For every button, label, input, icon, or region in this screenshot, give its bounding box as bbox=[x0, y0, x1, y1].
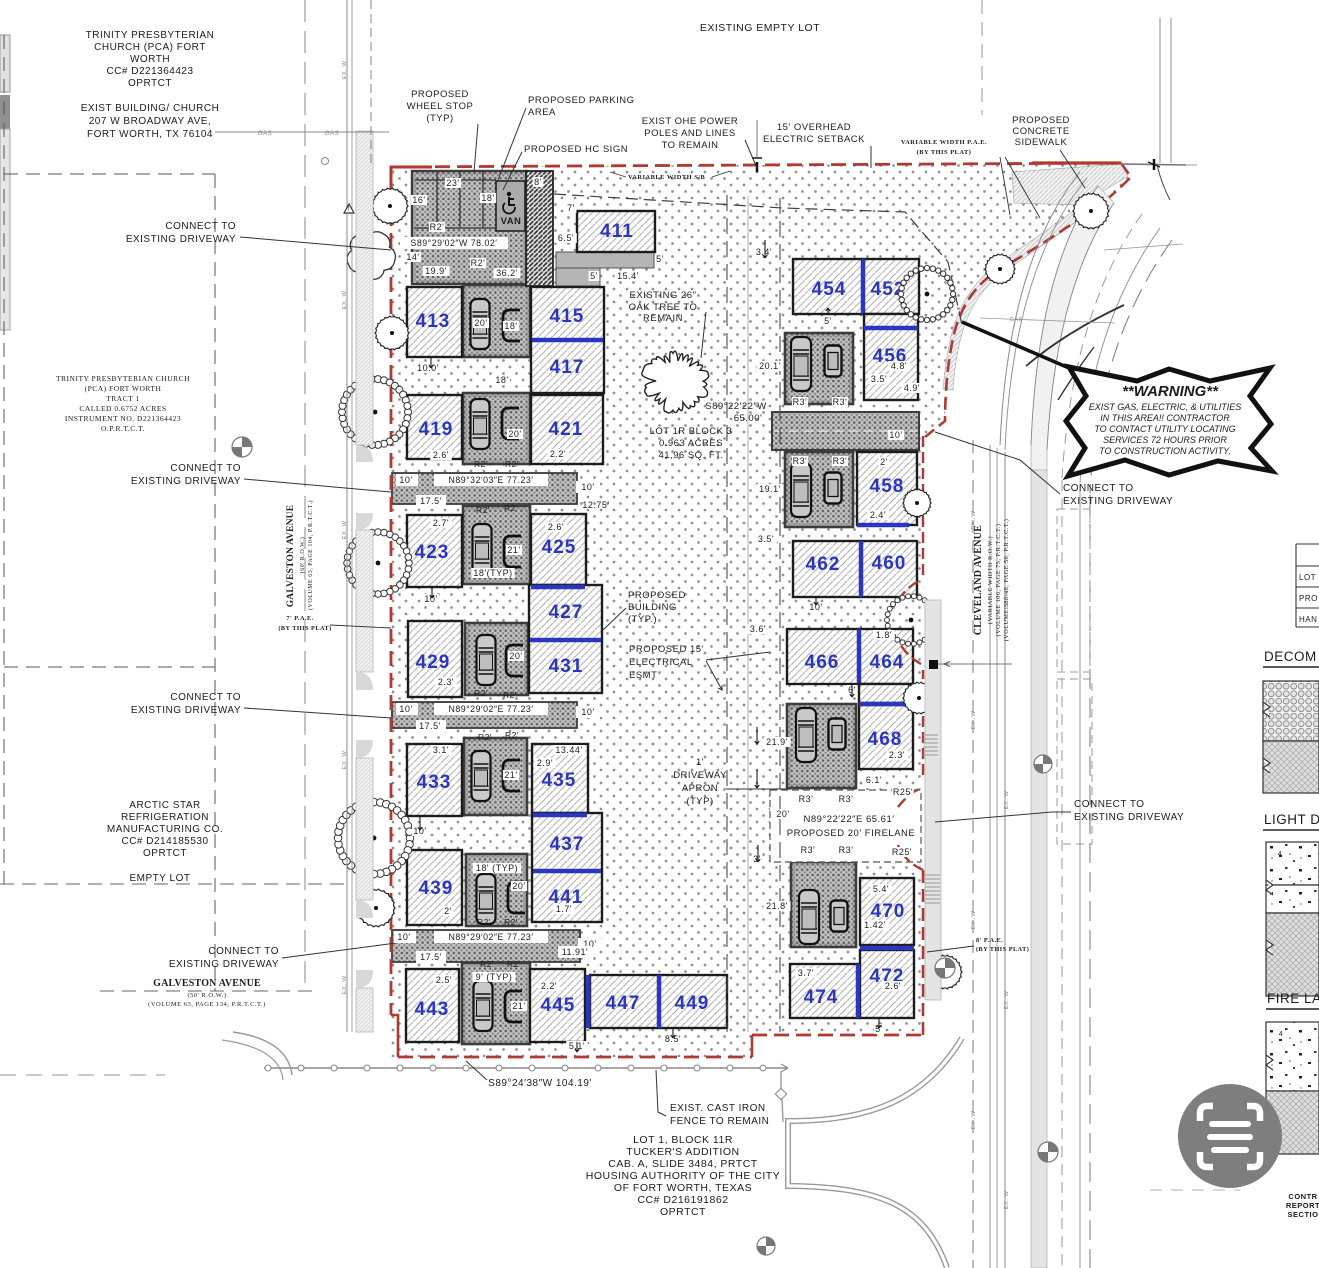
svg-text:R3': R3' bbox=[801, 845, 816, 855]
svg-text:EXISTING DRIVEWAY: EXISTING DRIVEWAY bbox=[126, 234, 236, 245]
svg-text:N89°29′02″E 77.23′: N89°29′02″E 77.23′ bbox=[449, 704, 534, 714]
svg-text:CC# D221364423: CC# D221364423 bbox=[106, 66, 193, 77]
svg-text:2.3': 2.3' bbox=[889, 750, 905, 760]
svg-text:9' (TYP): 9' (TYP) bbox=[476, 972, 513, 982]
svg-text:5.4': 5.4' bbox=[873, 884, 889, 894]
svg-text:R2': R2' bbox=[505, 459, 519, 469]
svg-text:464: 464 bbox=[870, 652, 905, 673]
svg-text:437: 437 bbox=[550, 834, 585, 855]
svg-text:447: 447 bbox=[606, 993, 641, 1014]
svg-text:10': 10' bbox=[889, 430, 902, 440]
svg-text:ELECTRICAL: ELECTRICAL bbox=[629, 657, 693, 668]
svg-text:462: 462 bbox=[806, 554, 841, 575]
svg-text:CLEVELAND AVENUE: CLEVELAND AVENUE bbox=[973, 525, 984, 636]
svg-text:CONCRETE: CONCRETE bbox=[1012, 126, 1069, 137]
svg-text:LOT: LOT bbox=[1299, 573, 1316, 582]
svg-text:5': 5' bbox=[590, 271, 598, 281]
svg-text:TO CONTACT UTILITY LOCATING: TO CONTACT UTILITY LOCATING bbox=[1094, 424, 1235, 434]
svg-text:20': 20' bbox=[512, 881, 525, 891]
svg-text:10': 10' bbox=[397, 932, 410, 942]
svg-text:2.9': 2.9' bbox=[537, 758, 553, 768]
svg-text:429: 429 bbox=[416, 652, 451, 673]
svg-text:1.8': 1.8' bbox=[876, 630, 892, 640]
svg-text:3.5': 3.5' bbox=[871, 374, 887, 384]
svg-text:6.1': 6.1' bbox=[866, 775, 882, 785]
svg-text:BUILDING: BUILDING bbox=[628, 602, 677, 613]
svg-text:21.8': 21.8' bbox=[766, 901, 788, 911]
svg-text:ARCTIC STAR: ARCTIC STAR bbox=[129, 800, 200, 811]
svg-text:EX. W: EX. W bbox=[342, 976, 348, 995]
svg-text:FIRE LA: FIRE LA bbox=[1267, 991, 1319, 1006]
svg-text:5': 5' bbox=[824, 316, 832, 326]
svg-text:470: 470 bbox=[871, 901, 906, 922]
svg-text:1': 1' bbox=[696, 757, 704, 768]
svg-text:TO REMAIN: TO REMAIN bbox=[661, 140, 718, 151]
svg-text:EX. W: EX. W bbox=[971, 1111, 977, 1130]
svg-text:419: 419 bbox=[419, 419, 454, 440]
svg-text:2.3': 2.3' bbox=[438, 677, 454, 687]
svg-text:4: 4 bbox=[1279, 1031, 1283, 1038]
svg-text:WORTH: WORTH bbox=[130, 54, 170, 65]
svg-text:R2': R2' bbox=[474, 688, 488, 698]
svg-text:EX. W: EX. W bbox=[342, 751, 348, 770]
svg-text:423: 423 bbox=[415, 542, 450, 563]
svg-text:458: 458 bbox=[870, 476, 905, 497]
svg-text:OPRTCT: OPRTCT bbox=[128, 78, 172, 89]
svg-text:DECOM: DECOM bbox=[1264, 649, 1317, 664]
svg-text:EX. W: EX. W bbox=[342, 61, 348, 80]
svg-text:7' P.A.E.: 7' P.A.E. bbox=[286, 615, 313, 622]
svg-text:(TYP): (TYP) bbox=[686, 796, 713, 807]
svg-text:PROPOSED 20' FIRELANE: PROPOSED 20' FIRELANE bbox=[787, 828, 915, 839]
svg-text:VARIABLE WIDTH S/B: VARIABLE WIDTH S/B bbox=[628, 174, 706, 181]
svg-text:2.2': 2.2' bbox=[550, 449, 566, 459]
svg-text:4.8': 4.8' bbox=[891, 361, 907, 371]
svg-text:(TYP.): (TYP.) bbox=[628, 614, 657, 625]
svg-text:CONNECT TO: CONNECT TO bbox=[170, 463, 241, 474]
svg-text:REFRIGERATION: REFRIGERATION bbox=[121, 812, 209, 823]
svg-text:HOUSING AUTHORITY OF THE CITY: HOUSING AUTHORITY OF THE CITY bbox=[586, 1170, 780, 1182]
svg-text:36.2': 36.2' bbox=[496, 268, 518, 278]
svg-text:WHEEL STOP: WHEEL STOP bbox=[407, 101, 474, 112]
svg-text:EXISTING DRIVEWAY: EXISTING DRIVEWAY bbox=[169, 959, 279, 970]
svg-text:421: 421 bbox=[549, 419, 584, 440]
svg-text:3.4': 3.4' bbox=[756, 247, 772, 257]
svg-text:DRIVEWAY: DRIVEWAY bbox=[673, 770, 727, 781]
svg-text:MANUFACTURING CO.: MANUFACTURING CO. bbox=[107, 824, 223, 835]
svg-text:R3': R3' bbox=[839, 845, 854, 855]
svg-text:INSTRUMENT NO. D221364423: INSTRUMENT NO. D221364423 bbox=[65, 414, 181, 423]
svg-text:20': 20' bbox=[776, 809, 789, 819]
svg-text:2.6': 2.6' bbox=[885, 981, 901, 991]
svg-text:GAS: GAS bbox=[1009, 317, 1022, 323]
svg-text:(VOLUME 106, PAGE 75, P.R.T.C.: (VOLUME 106, PAGE 75, P.R.T.C.T.) bbox=[995, 524, 1002, 637]
svg-text:EXIST OHE POWER: EXIST OHE POWER bbox=[642, 116, 739, 127]
svg-text:EXISTING DRIVEWAY: EXISTING DRIVEWAY bbox=[131, 476, 241, 487]
svg-text:(50' R.O.W.): (50' R.O.W.) bbox=[187, 992, 226, 999]
svg-text:18': 18' bbox=[504, 321, 517, 331]
svg-text:AREA: AREA bbox=[528, 107, 556, 118]
svg-text:PROPOSED: PROPOSED bbox=[411, 89, 469, 100]
svg-text:LIGHT D: LIGHT D bbox=[1264, 812, 1319, 827]
svg-text:21': 21' bbox=[504, 770, 517, 780]
svg-text:CONNECT TO: CONNECT TO bbox=[1063, 483, 1134, 494]
svg-text:SERVICES 72 HOURS PRIOR: SERVICES 72 HOURS PRIOR bbox=[1103, 435, 1227, 445]
svg-text:20': 20' bbox=[509, 651, 522, 661]
svg-text:13.44': 13.44' bbox=[555, 745, 582, 755]
svg-text:EX. W: EX. W bbox=[1004, 1191, 1010, 1210]
svg-text:15.4': 15.4' bbox=[617, 271, 639, 281]
svg-text:413: 413 bbox=[416, 311, 451, 332]
svg-text:(VOLUME 388-48, PAGE 50, P.R.T: (VOLUME 388-48, PAGE 50, P.R.T.C.T.) bbox=[1003, 519, 1010, 642]
svg-text:REPORT: REPORT bbox=[1286, 1201, 1319, 1210]
svg-text:LOT 1R BLOCK 3: LOT 1R BLOCK 3 bbox=[650, 426, 733, 437]
svg-text:18' (TYP): 18' (TYP) bbox=[476, 863, 518, 873]
svg-text:3.1': 3.1' bbox=[433, 745, 449, 755]
svg-text:OPRTCT: OPRTCT bbox=[143, 848, 187, 859]
svg-text:TRINITY PRESBYTERIAN CHURCH: TRINITY PRESBYTERIAN CHURCH bbox=[56, 374, 190, 383]
svg-text:R3': R3' bbox=[799, 794, 814, 804]
svg-text:TO CONSTRUCTION ACTIVITY.: TO CONSTRUCTION ACTIVITY. bbox=[1099, 446, 1231, 456]
svg-text:IN THIS AREA!! CONTRACTOR: IN THIS AREA!! CONTRACTOR bbox=[1100, 413, 1230, 423]
svg-text:16': 16' bbox=[412, 195, 425, 205]
svg-text:449: 449 bbox=[675, 993, 710, 1014]
svg-text:R2': R2' bbox=[504, 503, 518, 513]
svg-text:EX. W: EX. W bbox=[342, 521, 348, 540]
svg-text:EX. W: EX. W bbox=[1004, 991, 1010, 1010]
svg-text:EXISTING EMPTY LOT: EXISTING EMPTY LOT bbox=[700, 22, 820, 34]
svg-text:2.6': 2.6' bbox=[433, 450, 449, 460]
svg-text:EX. W: EX. W bbox=[1004, 591, 1010, 610]
svg-text:R25': R25' bbox=[893, 787, 913, 797]
svg-text:R2': R2' bbox=[504, 917, 518, 927]
svg-text:415: 415 bbox=[550, 306, 585, 327]
svg-text:OAK TREE TO: OAK TREE TO bbox=[629, 302, 698, 313]
svg-text:2.5': 2.5' bbox=[436, 975, 452, 985]
svg-text:CONNECT TO: CONNECT TO bbox=[208, 946, 279, 957]
svg-text:20': 20' bbox=[474, 318, 487, 328]
svg-text:19.9': 19.9' bbox=[425, 266, 447, 276]
svg-text:R2': R2' bbox=[507, 959, 521, 969]
svg-text:4: 4 bbox=[1278, 851, 1282, 858]
svg-text:EXIST GAS, ELECTRIC, & UTILITI: EXIST GAS, ELECTRIC, & UTILITIES bbox=[1089, 402, 1242, 412]
svg-text:21': 21' bbox=[507, 545, 520, 555]
svg-text:CAB. A, SLIDE 3484, PRTCT: CAB. A, SLIDE 3484, PRTCT bbox=[608, 1158, 758, 1170]
svg-text:(60' R.O.W.): (60' R.O.W.) bbox=[299, 537, 306, 574]
svg-text:(VARIABLE WIDTH R.O.W.): (VARIABLE WIDTH R.O.W.) bbox=[987, 536, 994, 624]
svg-text:S89°24′38″W 104.19′: S89°24′38″W 104.19′ bbox=[488, 1078, 592, 1089]
svg-text:20.1': 20.1' bbox=[759, 361, 781, 371]
svg-text:445: 445 bbox=[541, 995, 576, 1016]
svg-text:PROPOSED PARKING: PROPOSED PARKING bbox=[528, 95, 635, 106]
svg-text:454: 454 bbox=[812, 279, 847, 300]
svg-text:**WARNING**: **WARNING** bbox=[1122, 383, 1219, 400]
svg-text:EX. W: EX. W bbox=[1004, 791, 1010, 810]
svg-text:207 W BROADWAY AVE,: 207 W BROADWAY AVE, bbox=[89, 116, 212, 127]
svg-text:O.P.R.T.C.T.: O.P.R.T.C.T. bbox=[101, 424, 145, 433]
svg-text:427: 427 bbox=[549, 602, 584, 623]
svg-text:APRON: APRON bbox=[682, 783, 718, 794]
svg-text:!: ! bbox=[348, 206, 350, 213]
svg-text:5': 5' bbox=[656, 254, 664, 264]
svg-text:3.7': 3.7' bbox=[798, 968, 814, 978]
svg-text:2.2': 2.2' bbox=[541, 981, 557, 991]
svg-text:R3': R3' bbox=[839, 794, 854, 804]
svg-text:S89°22′22″W: S89°22′22″W bbox=[705, 401, 766, 412]
svg-text:TRINITY PRESBYTERIAN: TRINITY PRESBYTERIAN bbox=[86, 30, 215, 41]
svg-text:(VOLUME 63, PAGE 134, P.R.T.C.: (VOLUME 63, PAGE 134, P.R.T.C.T.) bbox=[148, 1001, 266, 1008]
svg-text:21.9': 21.9' bbox=[766, 737, 788, 747]
svg-text:R3': R3' bbox=[793, 456, 808, 466]
svg-text:14': 14' bbox=[406, 252, 419, 262]
svg-text:R2': R2' bbox=[430, 222, 445, 232]
svg-text:ELECTRIC SETBACK: ELECTRIC SETBACK bbox=[763, 134, 865, 145]
svg-text:N89°32′03″E 77.23′: N89°32′03″E 77.23′ bbox=[449, 475, 534, 485]
svg-text:411: 411 bbox=[600, 221, 634, 242]
svg-text:R2': R2' bbox=[480, 959, 494, 969]
svg-text:CC# D216191862: CC# D216191862 bbox=[637, 1194, 728, 1206]
svg-text:(BY THIS PLAT): (BY THIS PLAT) bbox=[278, 625, 331, 632]
svg-text:GAS: GAS bbox=[258, 131, 272, 137]
svg-text:435: 435 bbox=[542, 770, 577, 791]
svg-text:S89°29′02″W 78.02′: S89°29′02″W 78.02′ bbox=[411, 238, 498, 248]
svg-text:2.4': 2.4' bbox=[870, 510, 886, 520]
svg-text:R2': R2' bbox=[471, 258, 486, 268]
svg-text:FENCE TO REMAIN: FENCE TO REMAIN bbox=[670, 1116, 769, 1127]
svg-text:PROPOSED: PROPOSED bbox=[1012, 115, 1070, 126]
svg-text:LOT 1, BLOCK 11R: LOT 1, BLOCK 11R bbox=[633, 1134, 733, 1146]
svg-text:10': 10' bbox=[399, 475, 412, 485]
svg-text:CALLED 0.6752 ACRES: CALLED 0.6752 ACRES bbox=[79, 404, 166, 413]
svg-text:PROPOSED 15': PROPOSED 15' bbox=[629, 644, 704, 655]
svg-text:8': 8' bbox=[534, 177, 542, 187]
svg-text:2.6': 2.6' bbox=[548, 522, 564, 532]
svg-text:23': 23' bbox=[446, 178, 459, 188]
svg-text:GALVESTON AVENUE: GALVESTON AVENUE bbox=[286, 505, 296, 608]
svg-text:17.5': 17.5' bbox=[419, 721, 441, 731]
svg-text:15' OVERHEAD: 15' OVERHEAD bbox=[777, 122, 851, 133]
svg-text:EX. W: EX. W bbox=[342, 291, 348, 310]
svg-text:460: 460 bbox=[872, 553, 907, 574]
svg-text:(PCA) FORT WORTH: (PCA) FORT WORTH bbox=[85, 384, 162, 393]
svg-text:CONNECT TO: CONNECT TO bbox=[165, 221, 236, 232]
svg-text:474: 474 bbox=[804, 987, 839, 1008]
svg-text:GALVESTON AVENUE: GALVESTON AVENUE bbox=[153, 978, 261, 989]
svg-text:(BY THIS PLAT): (BY THIS PLAT) bbox=[917, 149, 972, 156]
svg-text:R3': R3' bbox=[833, 456, 848, 466]
svg-text:1.7': 1.7' bbox=[556, 904, 572, 914]
svg-text:FORT WORTH, TX 76104: FORT WORTH, TX 76104 bbox=[87, 129, 213, 140]
svg-text:PROPOSED HC SIGN: PROPOSED HC SIGN bbox=[524, 144, 628, 155]
svg-text:EXIST BUILDING/ CHURCH: EXIST BUILDING/ CHURCH bbox=[81, 103, 220, 114]
svg-text:439: 439 bbox=[419, 878, 454, 899]
svg-text:EX. W: EX. W bbox=[971, 511, 977, 530]
svg-text:2': 2' bbox=[444, 906, 452, 916]
svg-text:18': 18' bbox=[495, 375, 508, 385]
svg-text:CONNECT TO: CONNECT TO bbox=[1074, 799, 1145, 810]
svg-text:R2': R2' bbox=[503, 690, 517, 700]
svg-text:18'(TYP): 18'(TYP) bbox=[473, 568, 512, 578]
svg-text:CONNECT TO: CONNECT TO bbox=[170, 692, 241, 703]
svg-text:SIDEWALK: SIDEWALK bbox=[1015, 137, 1068, 148]
svg-text:7': 7' bbox=[567, 203, 575, 213]
svg-text:R25': R25' bbox=[892, 847, 912, 857]
svg-text:3.6': 3.6' bbox=[750, 624, 766, 634]
svg-text:CONTR: CONTR bbox=[1288, 1192, 1317, 1201]
svg-text:2': 2' bbox=[880, 457, 888, 467]
svg-text:EXIST. CAST IRON: EXIST. CAST IRON bbox=[670, 1103, 766, 1114]
svg-text:R2': R2' bbox=[474, 459, 488, 469]
svg-text:21': 21' bbox=[512, 1001, 525, 1011]
svg-text:PRO: PRO bbox=[1299, 594, 1318, 603]
svg-text:10': 10' bbox=[424, 594, 437, 604]
svg-text:R3': R3' bbox=[833, 397, 848, 407]
svg-text:EXISTING DRIVEWAY: EXISTING DRIVEWAY bbox=[1063, 496, 1173, 507]
svg-text:PROPOSED: PROPOSED bbox=[628, 590, 686, 601]
svg-text:468: 468 bbox=[868, 729, 903, 750]
svg-text:CHURCH (PCA) FORT: CHURCH (PCA) FORT bbox=[94, 42, 206, 53]
svg-text:SECTIO: SECTIO bbox=[1288, 1210, 1319, 1219]
svg-text:433: 433 bbox=[417, 772, 452, 793]
svg-text:10': 10' bbox=[581, 707, 594, 717]
svg-text:EXISTING DRIVEWAY: EXISTING DRIVEWAY bbox=[1074, 812, 1184, 823]
svg-text:(BY THIS PLAT): (BY THIS PLAT) bbox=[976, 946, 1029, 953]
svg-text:466: 466 bbox=[805, 652, 840, 673]
svg-text:12.75': 12.75' bbox=[582, 500, 609, 510]
svg-text:1.42': 1.42' bbox=[864, 920, 886, 930]
svg-text:10': 10' bbox=[399, 704, 412, 714]
svg-text:(TYP): (TYP) bbox=[426, 113, 453, 124]
svg-text:VARIABLE WIDTH P.A.E.: VARIABLE WIDTH P.A.E. bbox=[901, 139, 987, 146]
svg-text:R2': R2' bbox=[476, 505, 490, 515]
svg-text:20': 20' bbox=[508, 429, 521, 439]
svg-text:CC# D214185530: CC# D214185530 bbox=[121, 836, 208, 847]
svg-text:R2': R2' bbox=[477, 917, 491, 927]
svg-text:N89°29′02″E 77.23′: N89°29′02″E 77.23′ bbox=[449, 932, 534, 942]
svg-text:(VOLUME 63, PAGE 104, P.R.T.C.: (VOLUME 63, PAGE 104, P.R.T.C.T.) bbox=[307, 500, 314, 610]
svg-text:65.00': 65.00' bbox=[734, 413, 763, 424]
svg-text:2.7': 2.7' bbox=[433, 518, 449, 528]
svg-text:19.1': 19.1' bbox=[759, 484, 781, 494]
svg-text:10.0': 10.0' bbox=[417, 363, 439, 373]
svg-text:17.5': 17.5' bbox=[420, 496, 442, 506]
svg-text:TUCKER'S ADDITION: TUCKER'S ADDITION bbox=[626, 1146, 739, 1158]
svg-text:41,96 SQ. FT.: 41,96 SQ. FT. bbox=[658, 450, 723, 461]
svg-text:HAN: HAN bbox=[1299, 615, 1317, 624]
svg-text:GAS: GAS bbox=[325, 131, 339, 137]
svg-text:425: 425 bbox=[542, 537, 577, 558]
svg-text:443: 443 bbox=[415, 999, 450, 1020]
svg-text:OPRTCT: OPRTCT bbox=[660, 1206, 706, 1218]
svg-text:11.91': 11.91' bbox=[562, 947, 589, 957]
svg-text:6.5': 6.5' bbox=[558, 233, 574, 243]
svg-text:OF FORT WORTH, TEXAS: OF FORT WORTH, TEXAS bbox=[614, 1182, 752, 1194]
svg-text:431: 431 bbox=[549, 656, 584, 677]
svg-text:EXISTING DRIVEWAY: EXISTING DRIVEWAY bbox=[131, 705, 241, 716]
svg-text:POLES AND LINES: POLES AND LINES bbox=[644, 128, 735, 139]
svg-text:4.9': 4.9' bbox=[904, 383, 920, 393]
svg-text:3.5': 3.5' bbox=[758, 534, 774, 544]
svg-text:EMPTY LOT: EMPTY LOT bbox=[130, 873, 191, 884]
svg-text:10': 10' bbox=[581, 482, 594, 492]
svg-text:REMAIN: REMAIN bbox=[643, 313, 683, 324]
svg-text:R3': R3' bbox=[793, 397, 808, 407]
svg-text:0.963 ACRES: 0.963 ACRES bbox=[659, 438, 723, 449]
svg-text:EXISTING 26": EXISTING 26" bbox=[630, 290, 697, 301]
svg-text:17.5': 17.5' bbox=[420, 952, 442, 962]
svg-text:EX. W: EX. W bbox=[971, 711, 977, 730]
svg-text:R2': R2' bbox=[505, 730, 519, 740]
svg-text:417: 417 bbox=[550, 357, 585, 378]
svg-text:ESMT: ESMT bbox=[629, 670, 657, 681]
svg-text:TRACT 1: TRACT 1 bbox=[106, 394, 140, 403]
svg-text:R2': R2' bbox=[478, 732, 492, 742]
svg-text:EX. W: EX. W bbox=[971, 911, 977, 930]
svg-text:N89°22′22″E 65.61′: N89°22′22″E 65.61′ bbox=[803, 814, 894, 825]
svg-text:8' P.A.E.: 8' P.A.E. bbox=[976, 937, 1003, 944]
svg-text:18': 18' bbox=[481, 193, 494, 203]
svg-text:VAN: VAN bbox=[501, 216, 522, 227]
